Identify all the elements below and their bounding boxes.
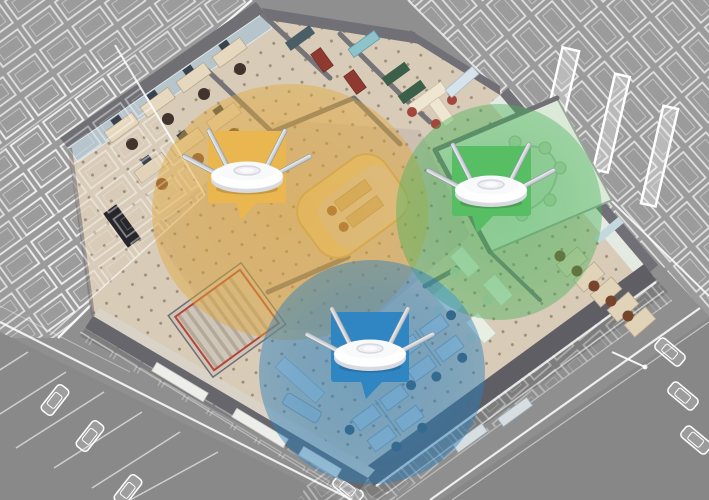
wifi-coverage-illustration [0, 0, 709, 500]
scene-canvas [0, 0, 709, 500]
street-lamp-icon [643, 365, 648, 370]
